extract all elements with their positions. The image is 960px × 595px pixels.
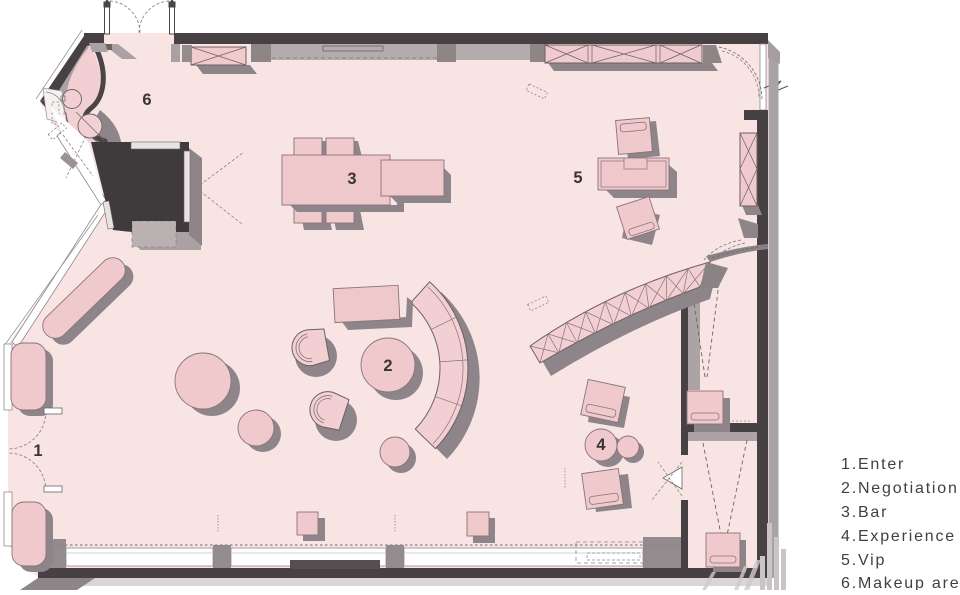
svg-text:2.Negotiation: 2.Negotiation [841, 480, 959, 497]
svg-text:1: 1 [33, 442, 42, 460]
svg-text:6.Makeup area: 6.Makeup area [841, 575, 960, 590]
svg-text:5: 5 [573, 169, 582, 187]
svg-text:3.Bar: 3.Bar [841, 504, 888, 521]
svg-text:5.Vip: 5.Vip [841, 552, 886, 569]
svg-text:1.Enter: 1.Enter [841, 456, 905, 473]
svg-text:4: 4 [596, 436, 606, 454]
svg-text:3: 3 [347, 170, 356, 188]
svg-text:4.Experience: 4.Experience [841, 528, 956, 545]
svg-text:6: 6 [142, 91, 151, 109]
svg-text:2: 2 [383, 357, 392, 375]
